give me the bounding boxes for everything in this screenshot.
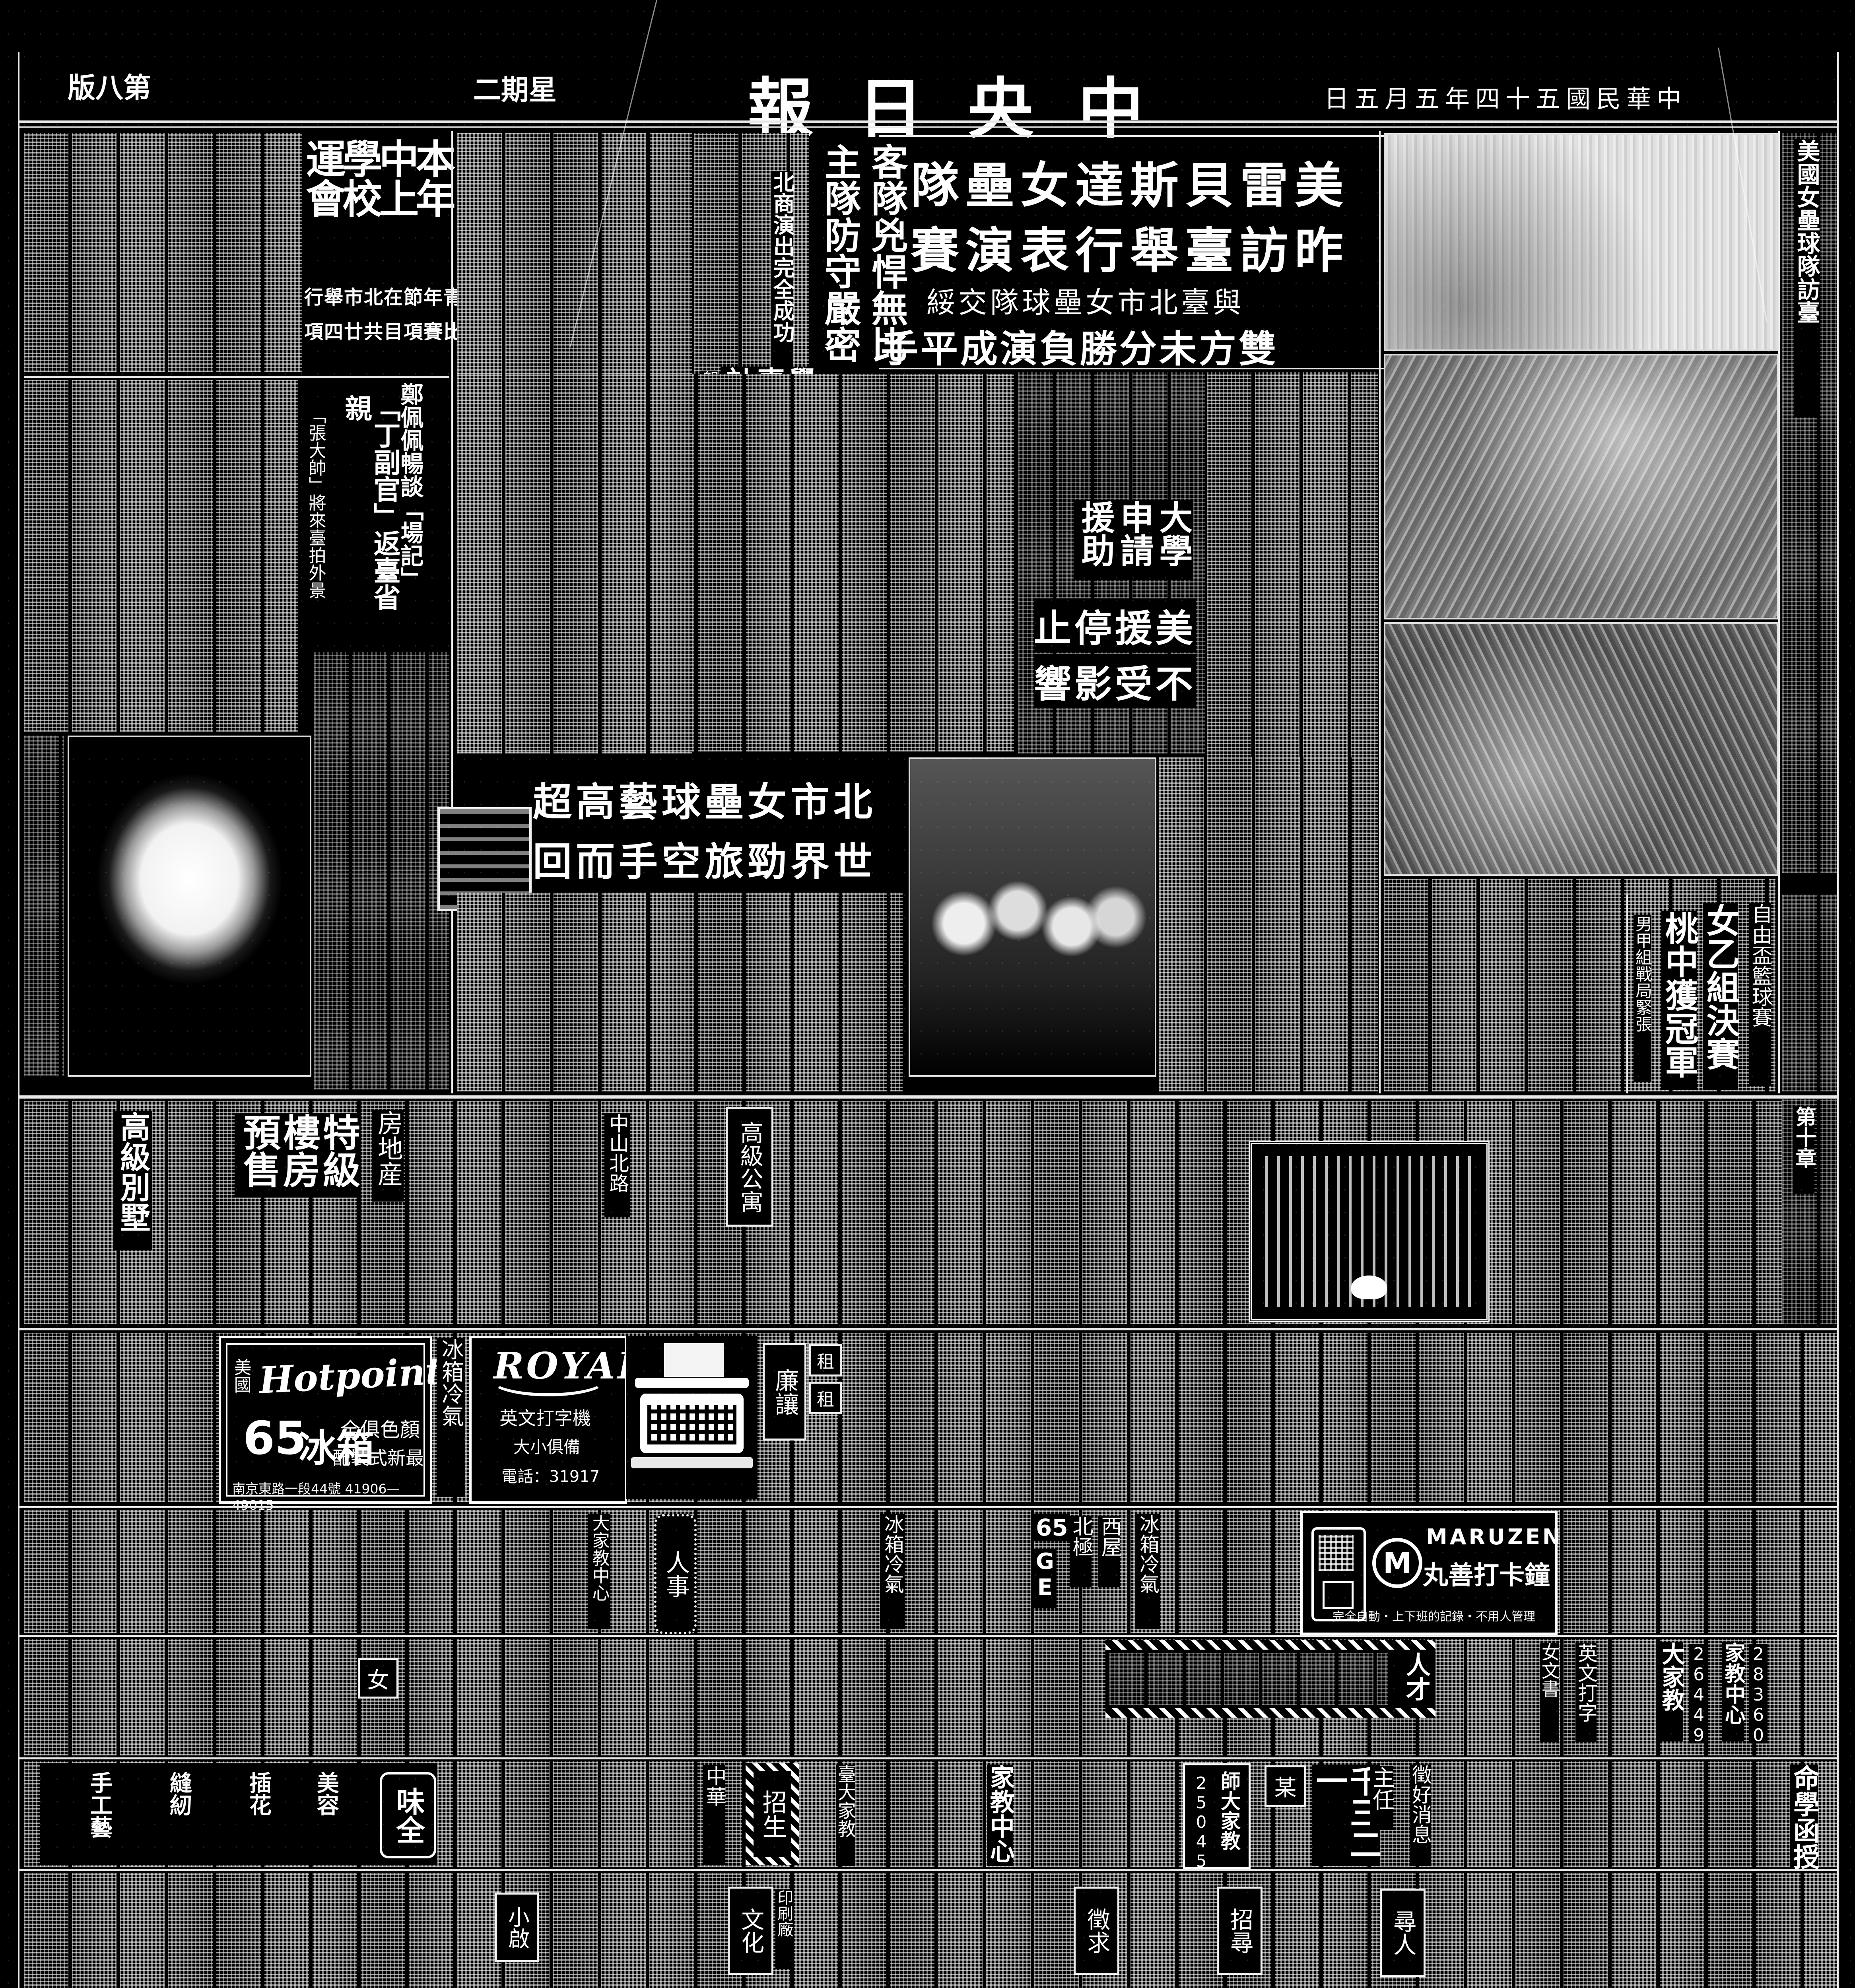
notice-box: 小啟 (495, 1893, 539, 1962)
school-meet-body-text (24, 133, 302, 372)
usaid-headline-1: 美援停止 (1034, 598, 1196, 652)
main-head-rule-top (879, 135, 1384, 137)
woman-label: 女 (367, 1662, 389, 1695)
edition-label: 第八版 (68, 66, 151, 106)
center-body-text (457, 374, 1014, 751)
basket-rule (1626, 895, 1628, 1093)
band6-noise (24, 1873, 1837, 1988)
school-meet-headline: 本年中上學校運會 (303, 138, 450, 227)
weichuan-ad: 手工藝 縫紉 插花 美容 味全 (40, 1763, 437, 1865)
ge-label: GE (1033, 1549, 1057, 1608)
band5-rule (18, 1757, 1837, 1759)
band3-noise (24, 1510, 1837, 1633)
seek-label: 招尋 (1228, 1908, 1252, 1954)
group-photo (909, 757, 1156, 1077)
weichuan-item-3: 插花 (247, 1771, 270, 1857)
admissions-box: 招生 (746, 1763, 799, 1865)
wanted-label: 徵求 (1084, 1908, 1109, 1954)
personnel-label: 人事 (663, 1550, 688, 1598)
usaid-headline-2: 不受影響 (1034, 654, 1196, 708)
maruzen-slogan: 完全自動・上下班的記錄・不用人管理 (1332, 1607, 1535, 1624)
frame-left (18, 52, 19, 1988)
main-headline-2: 昨訪臺舉行表演賽 (911, 212, 1350, 282)
maruzen-product: 丸善打卡鐘 (1423, 1555, 1550, 1592)
mou-label: 某 (1274, 1770, 1297, 1802)
movie-article-text-2 (314, 652, 449, 1089)
clerk-label: 女文書 (1540, 1643, 1559, 1742)
royal-swoosh (489, 1362, 607, 1396)
rent-box-1: 租 (809, 1344, 842, 1376)
typewriter-keys (647, 1405, 736, 1444)
movie-headline-1: 鄭佩佩暢談「場記」 (398, 382, 422, 613)
royal-phone: 電話：31917 (501, 1464, 600, 1487)
col-rule-2 (1379, 131, 1381, 1093)
weichuan-item-1: 手工藝 (87, 1771, 111, 1857)
royal-ad: ROYAL 英文打字機 大小俱備 電話：31917 (469, 1336, 627, 1504)
school-meet-subhead-1: 青年節在北市舉行 (304, 282, 463, 309)
realty-ad-figure (1351, 1276, 1387, 1299)
talent-label: 人才 (1403, 1652, 1429, 1708)
zhonghua-label: 中華 (703, 1765, 725, 1865)
talent-strip: 人才 (1105, 1640, 1435, 1718)
hotpoint-ad: 美國 Hotpoint 65 冰箱 顏色俱全 最新式裝配 南京東路一段44號 4… (219, 1336, 432, 1504)
action-photo-1 (1384, 354, 1779, 619)
find-person-box: 尋人 (1380, 1889, 1426, 1977)
woman-box: 女 (358, 1658, 398, 1699)
hotpoint-brand: Hotpoint (258, 1349, 443, 1402)
typewriter-base (631, 1457, 753, 1468)
page-header: 第八版 星期二 中央日報 中華民國五十四年五月五日 (0, 0, 1855, 131)
skill-body-text (457, 893, 903, 1091)
movie-headline-2: 「丁副官」返臺省親 (341, 394, 398, 633)
zhongshan-label: 中山北路 (604, 1113, 630, 1217)
printing-label: 印刷廠 (775, 1889, 792, 1969)
maruzen-logo-letter: M (1383, 1546, 1412, 1580)
admissions-label: 招生 (754, 1771, 791, 1857)
team-photo (1384, 133, 1779, 351)
col-rule-1 (451, 131, 453, 1093)
skill-headline-2: 世界勁旅空手而回 (533, 830, 876, 887)
school-meet-subhead-2: 比賽項目共廿四項 (304, 316, 463, 344)
talent-strip-text (1109, 1653, 1388, 1705)
photo-caption-title: 美國女壘球隊訪臺 (1794, 139, 1818, 417)
premium-house-label: 特級樓房預售 (235, 1113, 358, 1198)
action-photo-2 (1384, 622, 1779, 876)
band3-rule (18, 1506, 1837, 1508)
main-headline-deck: 與臺北市女壘球隊交綏 (927, 279, 1245, 321)
mou-box: 某 (1265, 1765, 1306, 1807)
main-headline-sub: 雙方未分勝負演成平手 (881, 319, 1278, 373)
band2-rule (18, 1328, 1837, 1330)
realty-label: 房地産 (372, 1110, 404, 1202)
bargain-box: 廉讓 (763, 1343, 806, 1441)
fridge-ac-col-3: 冰箱冷氣 (1135, 1514, 1160, 1629)
sixty-five-label: 65 (1034, 1514, 1070, 1541)
apartment-label-box: 高級公寓 (726, 1107, 773, 1227)
notice-label: 小啟 (505, 1906, 528, 1949)
basketball-headline-1: 女乙組決賽 (1703, 903, 1738, 1090)
fridge-ac-col-1: 冰箱冷氣 (437, 1338, 465, 1497)
royal-line-2: 大小俱備 (513, 1434, 580, 1458)
right-serial-text (1782, 895, 1837, 1091)
culture-box: 文化 (728, 1887, 773, 1975)
band1-rule (18, 1095, 1837, 1099)
hotpoint-feature-2: 最新式裝配 (332, 1444, 424, 1470)
maruzen-clock-slot (1323, 1581, 1354, 1609)
header-rule (18, 120, 1837, 123)
talent-strip-bottom (1105, 1708, 1435, 1718)
villa-label: 高級別墅 (113, 1111, 152, 1250)
visiting-team-subhead: 北商演出完全成功 (771, 171, 793, 394)
shida-tutor-phone: 25045 (1192, 1773, 1210, 1859)
apartment-label: 高級公寓 (737, 1121, 761, 1213)
school-meet-rule (24, 376, 449, 378)
royal-line-1: 英文打字機 (499, 1404, 591, 1430)
realty-display-ad (1249, 1141, 1490, 1322)
serial-chapter-label: 第十章 (1793, 1106, 1814, 1194)
band6-rule (18, 1869, 1837, 1871)
talent-strip-top (1105, 1640, 1435, 1650)
maruzen-brand: MARUZEN (1426, 1524, 1563, 1549)
weichuan-brand: 味全 (393, 1787, 423, 1844)
good-news-label: 徵好消息 (1410, 1765, 1431, 1866)
date-line: 中華民國五十四年五月五日 (1324, 79, 1687, 115)
maruzen-ad: M MARUZEN 丸善打卡鐘 完全自動・上下班的記錄・不用人管理 (1300, 1511, 1558, 1635)
basketball-headline-3: 男甲組戰局緊張 (1634, 915, 1651, 1082)
culture-label: 文化 (738, 1908, 763, 1954)
north-pole-label: 北極 (1070, 1516, 1092, 1587)
director-label: 主任 (1370, 1766, 1393, 1830)
tutor1-label: 大家教 (1659, 1642, 1683, 1741)
tutor-center-label: 家教中心 (987, 1765, 1013, 1866)
maruzen-clock-face (1319, 1535, 1354, 1571)
seek-box: 招尋 (1217, 1887, 1263, 1975)
usaid-kicker: 大學申請援助 (1074, 500, 1193, 580)
weichuan-item-2: 縫紉 (167, 1771, 190, 1857)
eng-typing-label: 英文打字 (1575, 1643, 1597, 1742)
wanted-box: 徵求 (1074, 1887, 1119, 1975)
rent-box-2: 租 (809, 1382, 842, 1414)
movie-article-text (24, 380, 298, 732)
typewriter-body (640, 1394, 744, 1453)
weekday-label: 星期二 (473, 68, 557, 108)
weichuan-brand-box: 味全 (380, 1772, 436, 1858)
typewriter-carriage (635, 1378, 749, 1388)
hotpoint-number: 65 (243, 1412, 307, 1465)
tutor2-label: 家教中心 (1722, 1642, 1744, 1741)
personnel-box: 人事 (654, 1514, 697, 1634)
find-person-label: 尋人 (1391, 1910, 1415, 1956)
main-head-rule-bottom (879, 368, 1384, 369)
tutor2-phone: 28360 (1749, 1644, 1768, 1743)
tutor-center-sm-label: 大家教中心 (588, 1514, 610, 1629)
shida-tutor-label: 師大家教 (1218, 1771, 1239, 1860)
weichuan-item-4: 美容 (314, 1771, 338, 1857)
westinghouse-label: 西屋 (1098, 1516, 1120, 1587)
typewriter-paper (664, 1343, 724, 1377)
skill-headline-1: 北市女壘球藝高超 (533, 771, 876, 827)
portrait-photo (68, 736, 311, 1077)
band4-noise (24, 1639, 1837, 1755)
frame-right (1837, 52, 1839, 1988)
portrait-caption-col (24, 736, 64, 1076)
maruzen-logo-circle: M (1372, 1538, 1422, 1588)
header-rule-2 (18, 126, 1837, 128)
basketball-kicker: 自由盃籃球賽 (1749, 903, 1771, 1086)
tutor1-phone: 26449 (1689, 1644, 1708, 1743)
movie-headline-3: 「張大帥」將來臺拍外景 (306, 406, 325, 629)
hotpoint-feature-1: 顏色俱全 (340, 1414, 420, 1442)
rent-label-2: 租 (817, 1385, 834, 1411)
main-headline-1: 美雷貝斯達女壘隊 (911, 146, 1350, 217)
band4-rule (18, 1635, 1837, 1637)
typewriter-illustration (626, 1336, 758, 1499)
shida-tutor-box: 師大家教 25045 (1183, 1763, 1251, 1869)
rent-label-1: 租 (817, 1347, 834, 1373)
fridge-ac-col-2: 冰箱冷氣 (880, 1514, 905, 1629)
basketball-headline-2: 桃中獲冠軍 (1661, 911, 1697, 1090)
newspaper-page: 第八版 星期二 中央日報 中華民國五十四年五月五日 本年中上學校運會 青年節在北… (0, 0, 1855, 1988)
ntu-tutor-label: 臺大家教 (836, 1765, 855, 1866)
group-side-text (1159, 757, 1378, 1091)
bargain-label: 廉讓 (772, 1368, 797, 1416)
col-rule-3 (1778, 131, 1780, 1093)
